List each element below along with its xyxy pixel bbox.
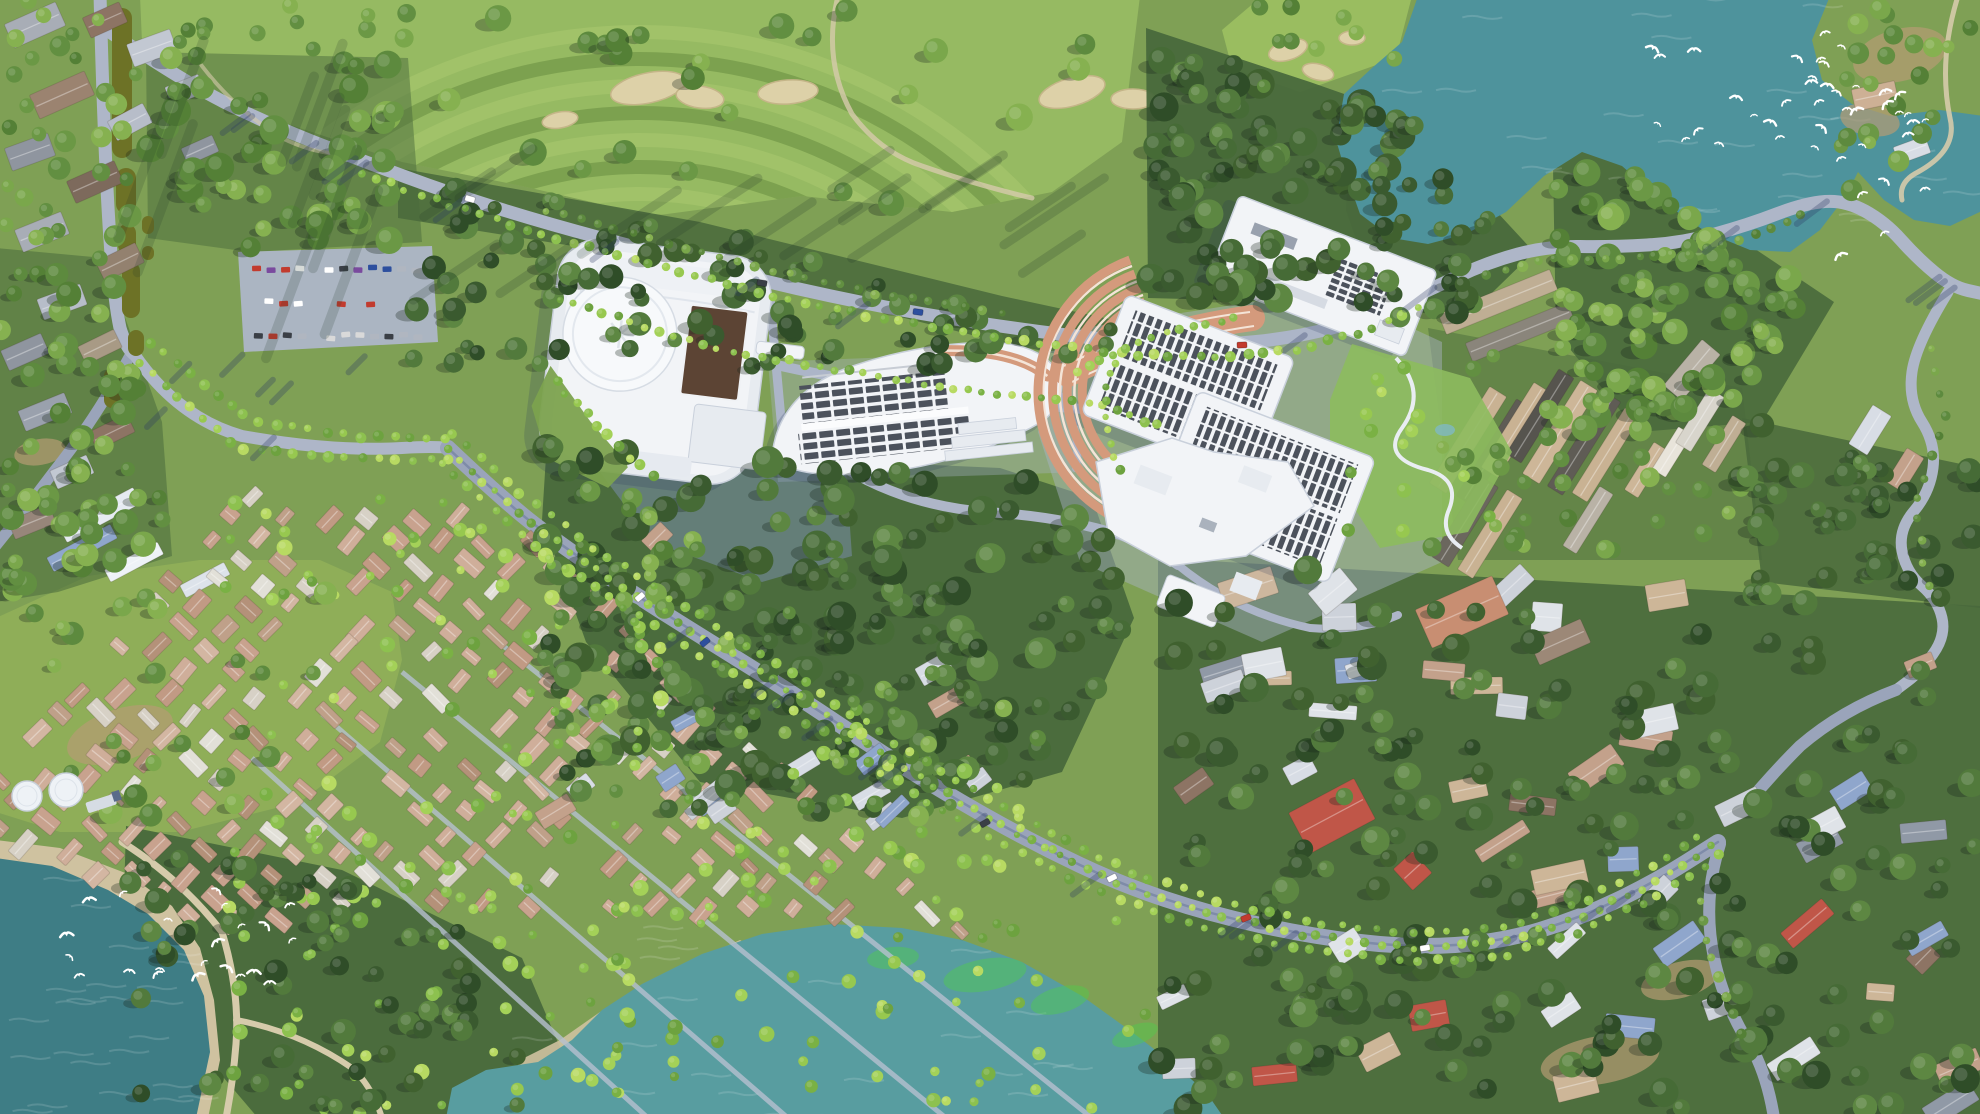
tree-highlight bbox=[370, 968, 377, 975]
tree-highlight bbox=[1009, 107, 1021, 119]
tree-highlight bbox=[1632, 180, 1643, 191]
tree-highlight bbox=[15, 269, 21, 275]
tree-highlight bbox=[1447, 458, 1454, 465]
tree-highlight bbox=[1829, 1027, 1840, 1038]
tree-highlight bbox=[889, 708, 895, 714]
tree-highlight bbox=[1648, 966, 1660, 978]
tree-highlight bbox=[1851, 1068, 1860, 1077]
tree-highlight bbox=[1934, 566, 1945, 577]
house bbox=[1422, 660, 1466, 682]
tree-highlight bbox=[1456, 680, 1466, 690]
tree-highlight bbox=[507, 340, 517, 350]
tree-highlight bbox=[440, 499, 444, 503]
tree-highlight bbox=[693, 801, 701, 809]
tree-highlight bbox=[695, 697, 705, 707]
tree-highlight bbox=[473, 801, 479, 807]
tree-highlight bbox=[1399, 363, 1405, 369]
tree-highlight bbox=[1753, 572, 1761, 580]
tree-highlight bbox=[561, 463, 571, 473]
tree-highlight bbox=[131, 69, 137, 75]
tree-highlight bbox=[620, 903, 625, 908]
tree-highlight bbox=[524, 631, 531, 638]
tree-highlight bbox=[422, 803, 428, 809]
tree-highlight bbox=[928, 1095, 934, 1101]
tree-highlight bbox=[988, 745, 998, 755]
tree-highlight bbox=[388, 662, 393, 667]
tree-highlight bbox=[497, 580, 503, 586]
tree-highlight bbox=[1372, 374, 1378, 380]
tree-highlight bbox=[1014, 805, 1019, 810]
tree-highlight bbox=[580, 751, 588, 759]
tree-highlight bbox=[1914, 126, 1923, 135]
tree-highlight bbox=[956, 682, 963, 689]
tree-highlight bbox=[1869, 558, 1881, 570]
tree-highlight bbox=[901, 87, 910, 96]
tree-highlight bbox=[1761, 585, 1771, 595]
tree-highlight bbox=[1964, 22, 1971, 29]
tree-highlight bbox=[1263, 241, 1272, 250]
tree-highlight bbox=[687, 782, 695, 790]
tree-highlight bbox=[1293, 131, 1306, 144]
tree-highlight bbox=[946, 580, 959, 593]
tree-highlight bbox=[1897, 744, 1907, 754]
tree-highlight bbox=[494, 938, 500, 944]
tree-highlight bbox=[685, 796, 689, 800]
tree-highlight bbox=[83, 524, 93, 534]
tree-highlight bbox=[159, 943, 165, 949]
tree-highlight bbox=[1768, 339, 1776, 347]
tree-highlight bbox=[890, 958, 896, 964]
tree-highlight bbox=[1679, 970, 1692, 983]
tree-highlight bbox=[974, 967, 979, 972]
tree-highlight bbox=[1330, 966, 1342, 978]
tree-highlight bbox=[873, 1072, 878, 1077]
tree-highlight bbox=[330, 1101, 337, 1108]
tree-highlight bbox=[529, 932, 533, 936]
tree-highlight bbox=[1631, 307, 1642, 318]
tree-highlight bbox=[300, 1067, 307, 1074]
tree-highlight bbox=[147, 757, 154, 764]
tree-highlight bbox=[131, 491, 139, 499]
tree-highlight bbox=[139, 591, 148, 600]
tree-highlight bbox=[1105, 324, 1111, 330]
tree-highlight bbox=[690, 312, 702, 324]
tree-highlight bbox=[1734, 939, 1743, 948]
tree-highlight bbox=[1621, 276, 1630, 285]
tree-highlight bbox=[634, 29, 642, 37]
tree-highlight bbox=[57, 622, 64, 629]
tree-highlight bbox=[230, 497, 237, 504]
tree-highlight bbox=[805, 30, 814, 39]
tree-highlight bbox=[197, 198, 204, 205]
tree-highlight bbox=[1693, 626, 1703, 636]
tree-highlight bbox=[1632, 421, 1642, 431]
tree-highlight bbox=[122, 874, 132, 884]
tree-highlight bbox=[580, 964, 584, 968]
tree-highlight bbox=[640, 246, 651, 257]
tree-highlight bbox=[1677, 813, 1686, 822]
tree-highlight bbox=[1323, 102, 1332, 111]
tree-highlight bbox=[1153, 96, 1166, 109]
tree-highlight bbox=[933, 897, 937, 901]
tree-highlight bbox=[1943, 42, 1949, 48]
tree-highlight bbox=[1803, 652, 1815, 664]
tree-highlight bbox=[862, 703, 873, 714]
tree-highlight bbox=[830, 560, 839, 569]
tree-highlight bbox=[502, 232, 513, 243]
tree-highlight bbox=[1485, 512, 1490, 517]
tree-highlight bbox=[1477, 219, 1485, 227]
tree-highlight bbox=[71, 54, 77, 60]
tree-highlight bbox=[470, 469, 473, 472]
tree-highlight bbox=[1933, 883, 1941, 891]
tree-highlight bbox=[1402, 947, 1412, 957]
tree-highlight bbox=[173, 852, 181, 860]
tree-highlight bbox=[557, 665, 570, 678]
tree-highlight bbox=[227, 796, 236, 805]
tree-highlight bbox=[511, 874, 517, 880]
tree-highlight bbox=[1343, 525, 1349, 531]
tree-highlight bbox=[150, 601, 159, 610]
tree-highlight bbox=[1769, 486, 1778, 495]
tree-highlight bbox=[254, 94, 261, 101]
tree-highlight bbox=[1347, 468, 1352, 473]
tree-highlight bbox=[231, 848, 235, 852]
tree-highlight bbox=[524, 885, 528, 889]
tree-highlight bbox=[1881, 1095, 1893, 1107]
tree-highlight bbox=[279, 541, 286, 548]
tree-highlight bbox=[1212, 127, 1223, 138]
tree-highlight bbox=[1187, 56, 1195, 64]
tree-highlight bbox=[281, 527, 286, 532]
tree-highlight bbox=[871, 615, 879, 623]
tree-highlight bbox=[1865, 78, 1872, 85]
tree-highlight bbox=[1396, 216, 1404, 224]
tree-highlight bbox=[1350, 27, 1357, 34]
tree-highlight bbox=[759, 895, 766, 902]
tree-highlight bbox=[1377, 219, 1385, 227]
tree-highlight bbox=[1664, 199, 1672, 207]
tree-highlight bbox=[829, 797, 837, 805]
tree-highlight bbox=[1341, 989, 1352, 1000]
tree-highlight bbox=[1164, 272, 1174, 282]
tree-highlight bbox=[260, 887, 267, 894]
tree-highlight bbox=[148, 891, 160, 903]
tree-highlight bbox=[1907, 37, 1916, 46]
parked-car bbox=[368, 265, 377, 271]
tree-highlight bbox=[442, 888, 447, 893]
tree-highlight bbox=[943, 1097, 947, 1101]
tree-highlight bbox=[142, 806, 152, 816]
tree-highlight bbox=[1388, 53, 1395, 60]
tree-highlight bbox=[617, 594, 625, 602]
tree-highlight bbox=[662, 802, 670, 810]
tree-highlight bbox=[1228, 75, 1240, 87]
tree-highlight bbox=[1488, 351, 1494, 357]
tree-highlight bbox=[1927, 111, 1934, 118]
tree-highlight bbox=[801, 659, 812, 670]
tree-highlight bbox=[873, 280, 879, 286]
tree-highlight bbox=[1509, 855, 1516, 862]
tree-highlight bbox=[1766, 1007, 1776, 1017]
tree-highlight bbox=[94, 252, 101, 259]
parked-car bbox=[370, 334, 379, 340]
tree-highlight bbox=[1614, 465, 1621, 472]
tree-highlight bbox=[1070, 60, 1081, 71]
tree-highlight bbox=[1707, 277, 1718, 288]
tree-highlight bbox=[959, 765, 966, 772]
tree-highlight bbox=[239, 410, 244, 415]
tree-highlight bbox=[1605, 843, 1612, 850]
tree-highlight bbox=[340, 430, 344, 434]
tree-highlight bbox=[1469, 605, 1477, 613]
tree-highlight bbox=[755, 762, 768, 775]
tree-highlight bbox=[1356, 294, 1365, 303]
tree-highlight bbox=[1343, 106, 1354, 117]
tree-highlight bbox=[1285, 0, 1293, 8]
tree-highlight bbox=[1943, 941, 1952, 950]
tree-highlight bbox=[324, 429, 329, 434]
tree-highlight bbox=[915, 474, 927, 486]
tree-highlight bbox=[818, 748, 825, 755]
tree-highlight bbox=[623, 504, 630, 511]
tree-highlight bbox=[538, 275, 546, 283]
tree-highlight bbox=[1228, 1073, 1236, 1081]
tree-highlight bbox=[1088, 680, 1098, 690]
tree-highlight bbox=[726, 793, 733, 800]
tree-highlight bbox=[1724, 307, 1736, 319]
tree-highlight bbox=[736, 727, 742, 733]
parked-car bbox=[264, 298, 273, 304]
tree-highlight bbox=[39, 488, 49, 498]
tree-highlight bbox=[1680, 209, 1691, 220]
tree-highlight bbox=[1795, 593, 1806, 604]
tree-highlight bbox=[101, 377, 111, 387]
tree-highlight bbox=[308, 950, 312, 954]
tree-highlight bbox=[602, 267, 613, 278]
tree-highlight bbox=[1361, 409, 1367, 415]
tree-highlight bbox=[959, 856, 966, 863]
tree-highlight bbox=[492, 792, 497, 797]
tree-highlight bbox=[742, 576, 752, 586]
tree-highlight bbox=[1261, 150, 1273, 162]
tree-highlight bbox=[1755, 485, 1762, 492]
tree-highlight bbox=[1407, 119, 1416, 128]
tree-highlight bbox=[33, 129, 40, 136]
tree-highlight bbox=[1767, 295, 1776, 304]
tree-highlight bbox=[747, 829, 752, 834]
tree-highlight bbox=[1115, 623, 1124, 632]
tree-highlight bbox=[1551, 682, 1561, 692]
tree-highlight bbox=[223, 859, 231, 867]
tree-highlight bbox=[20, 491, 31, 502]
building-complex-solar-part bbox=[1435, 424, 1455, 436]
tree-highlight bbox=[773, 303, 784, 314]
tree-highlight bbox=[504, 958, 511, 965]
tree-highlight bbox=[1552, 231, 1561, 240]
tree-highlight bbox=[674, 549, 683, 558]
tree-highlight bbox=[658, 710, 662, 714]
tree-highlight bbox=[376, 1000, 380, 1004]
tree-highlight bbox=[1335, 696, 1343, 704]
tree-highlight bbox=[30, 232, 37, 239]
tree-highlight bbox=[1675, 1101, 1683, 1109]
tree-highlight bbox=[453, 1022, 463, 1032]
tree-highlight bbox=[568, 646, 581, 659]
tree-highlight bbox=[1419, 798, 1431, 810]
tree-highlight bbox=[621, 652, 635, 666]
tree-highlight bbox=[1576, 362, 1584, 370]
tree-highlight bbox=[1259, 127, 1269, 137]
tree-highlight bbox=[1787, 300, 1797, 310]
tree-highlight bbox=[105, 551, 116, 562]
tree-highlight bbox=[384, 998, 392, 1006]
tree-highlight bbox=[1629, 684, 1642, 697]
tree-highlight bbox=[357, 434, 362, 439]
tree-highlight bbox=[831, 605, 844, 618]
tree-highlight bbox=[718, 774, 732, 788]
tree-highlight bbox=[1913, 69, 1921, 77]
tree-highlight bbox=[528, 520, 532, 524]
tree-highlight bbox=[335, 928, 342, 935]
tree-highlight bbox=[1937, 859, 1944, 866]
tree-highlight bbox=[1520, 515, 1526, 521]
tree-highlight bbox=[160, 349, 163, 352]
tree-highlight bbox=[737, 991, 743, 997]
tree-highlight bbox=[1925, 40, 1934, 49]
parked-car bbox=[294, 301, 303, 307]
tree-highlight bbox=[1913, 663, 1922, 672]
tree-highlight bbox=[478, 525, 483, 530]
tree-highlight bbox=[442, 435, 446, 439]
tree-highlight bbox=[1843, 182, 1853, 192]
tree-highlight bbox=[356, 856, 361, 861]
tree-highlight bbox=[1407, 426, 1413, 432]
tree-highlight bbox=[445, 446, 449, 450]
tree-highlight bbox=[341, 454, 344, 457]
tree-highlight bbox=[459, 995, 468, 1004]
tree-highlight bbox=[354, 914, 361, 921]
tree-highlight bbox=[772, 767, 784, 779]
tree-highlight bbox=[1577, 163, 1589, 175]
tree-highlight bbox=[1780, 1061, 1791, 1072]
tree-highlight bbox=[407, 434, 411, 438]
tree-highlight bbox=[979, 701, 988, 710]
roof-ridge bbox=[1610, 859, 1637, 860]
tree-highlight bbox=[873, 471, 881, 479]
tree-highlight bbox=[41, 205, 47, 211]
tree-highlight bbox=[604, 1059, 610, 1065]
tree-highlight bbox=[1015, 999, 1020, 1004]
tree-highlight bbox=[1099, 619, 1107, 627]
tree-highlight bbox=[718, 665, 725, 672]
tree-highlight bbox=[1952, 1047, 1964, 1059]
tree-highlight bbox=[53, 225, 60, 232]
tree-highlight bbox=[307, 834, 312, 839]
tree-highlight bbox=[1768, 461, 1779, 472]
tree-highlight bbox=[228, 402, 233, 407]
tree-highlight bbox=[263, 119, 276, 132]
tree-highlight bbox=[406, 863, 411, 868]
tree-highlight bbox=[373, 899, 377, 903]
tree-highlight bbox=[1212, 1037, 1221, 1046]
tree-highlight bbox=[72, 432, 81, 441]
tree-highlight bbox=[488, 8, 500, 20]
tree-highlight bbox=[631, 619, 635, 623]
tree-highlight bbox=[833, 758, 839, 764]
tree-highlight bbox=[1291, 857, 1302, 868]
tree-highlight bbox=[1274, 36, 1281, 43]
tree-highlight bbox=[1018, 773, 1026, 781]
tree-highlight bbox=[1479, 1081, 1488, 1090]
tree-highlight bbox=[539, 652, 546, 659]
tree-highlight bbox=[121, 174, 127, 180]
tree-highlight bbox=[108, 96, 118, 106]
tree-highlight bbox=[1177, 735, 1189, 747]
tree-highlight bbox=[681, 164, 690, 173]
tree-highlight bbox=[587, 999, 591, 1003]
tree-highlight bbox=[656, 643, 661, 648]
tree-highlight bbox=[182, 24, 189, 31]
tree-highlight bbox=[800, 799, 808, 807]
tree-highlight bbox=[1378, 388, 1383, 393]
parked-car bbox=[281, 267, 290, 273]
tree-highlight bbox=[875, 549, 889, 563]
tree-highlight bbox=[1846, 451, 1853, 458]
tree-highlight bbox=[1736, 274, 1748, 286]
tree-highlight bbox=[82, 359, 91, 368]
tree-highlight bbox=[309, 214, 322, 227]
tree-highlight bbox=[317, 584, 327, 594]
tree-highlight bbox=[663, 663, 672, 672]
tree-highlight bbox=[729, 551, 737, 559]
tree-highlight bbox=[446, 355, 455, 364]
tree-highlight bbox=[1290, 1042, 1302, 1054]
tree-highlight bbox=[1474, 672, 1484, 682]
tree-highlight bbox=[1641, 1035, 1652, 1046]
tree-highlight bbox=[827, 488, 841, 502]
tree-highlight bbox=[1677, 398, 1685, 406]
tree-highlight bbox=[699, 818, 705, 824]
tree-highlight bbox=[48, 266, 58, 276]
tree-highlight bbox=[589, 926, 594, 931]
tree-highlight bbox=[520, 754, 526, 760]
tree-highlight bbox=[150, 370, 153, 373]
tree-highlight bbox=[367, 573, 371, 577]
tree-highlight bbox=[1635, 451, 1643, 459]
tree-highlight bbox=[1305, 161, 1313, 169]
tree-highlight bbox=[253, 1076, 261, 1084]
parked-car bbox=[366, 301, 375, 307]
tree-highlight bbox=[543, 636, 552, 645]
tree-highlight bbox=[933, 337, 941, 345]
tree-highlight bbox=[634, 662, 643, 671]
tree-highlight bbox=[67, 29, 73, 35]
tree-highlight bbox=[457, 567, 461, 571]
tree-highlight bbox=[1696, 675, 1708, 687]
tree-highlight bbox=[976, 1080, 980, 1084]
tree-highlight bbox=[93, 307, 101, 315]
tree-highlight bbox=[656, 543, 665, 552]
tree-highlight bbox=[272, 447, 277, 452]
tree-highlight bbox=[239, 906, 247, 914]
tree-highlight bbox=[1466, 741, 1473, 748]
tree-highlight bbox=[163, 49, 173, 59]
tree-highlight bbox=[512, 1084, 518, 1090]
tree-highlight bbox=[669, 1057, 674, 1062]
tree-highlight bbox=[1652, 516, 1659, 523]
tree-highlight bbox=[611, 564, 619, 572]
